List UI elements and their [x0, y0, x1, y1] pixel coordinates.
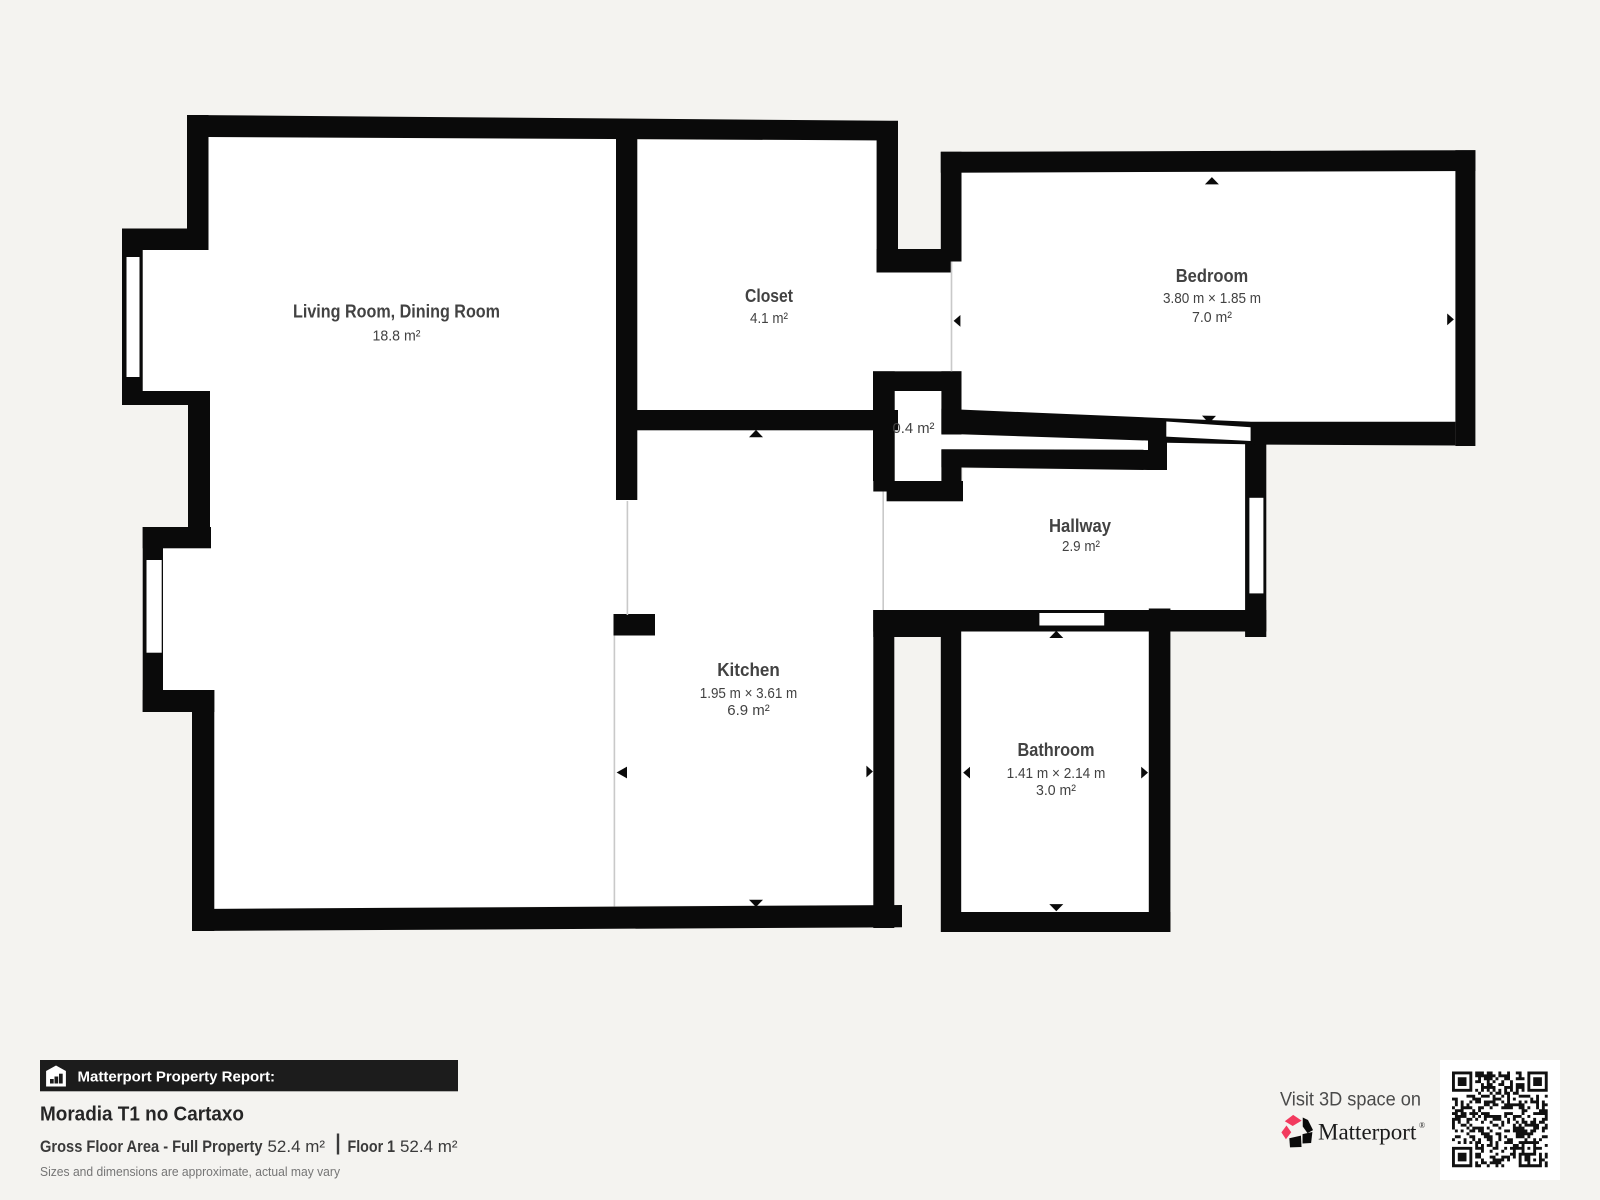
- svg-text:3.0 m²: 3.0 m²: [1036, 782, 1076, 799]
- svg-text:Hallway: Hallway: [1049, 516, 1111, 536]
- svg-text:7.0 m²: 7.0 m²: [1192, 309, 1232, 326]
- svg-text:Living Room, Dining Room: Living Room, Dining Room: [293, 302, 500, 322]
- svg-text:Moradia T1 no Cartaxo: Moradia T1 no Cartaxo: [40, 1103, 244, 1126]
- svg-text:Visit 3D space on: Visit 3D space on: [1280, 1089, 1421, 1111]
- svg-text:Bathroom: Bathroom: [1018, 740, 1095, 760]
- svg-text:1.41 m × 2.14 m: 1.41 m × 2.14 m: [1007, 765, 1106, 782]
- svg-text:Sizes and dimensions are appro: Sizes and dimensions are approximate, ac…: [40, 1164, 340, 1179]
- svg-text:Closet: Closet: [745, 286, 793, 306]
- svg-text:Matterport: Matterport: [1318, 1120, 1417, 1145]
- svg-text:Kitchen: Kitchen: [717, 660, 780, 680]
- svg-text:2.9 m²: 2.9 m²: [1062, 538, 1100, 555]
- svg-text:3.80 m × 1.85 m: 3.80 m × 1.85 m: [1163, 290, 1261, 307]
- svg-text:Floor 1: Floor 1: [348, 1138, 396, 1156]
- svg-text:18.8 m²: 18.8 m²: [373, 328, 421, 345]
- svg-text:0.4 m²: 0.4 m²: [893, 420, 935, 437]
- svg-text:52.4 m²: 52.4 m²: [400, 1138, 458, 1156]
- svg-text:1.95 m × 3.61 m: 1.95 m × 3.61 m: [700, 685, 798, 702]
- svg-text:®: ®: [1419, 1121, 1425, 1130]
- svg-text:Bedroom: Bedroom: [1176, 266, 1249, 286]
- svg-text:Matterport Property Report:: Matterport Property Report:: [78, 1069, 276, 1086]
- svg-text:4.1 m²: 4.1 m²: [750, 310, 788, 327]
- svg-text:Gross Floor Area - Full Proper: Gross Floor Area - Full Property: [40, 1138, 263, 1156]
- svg-text:6.9 m²: 6.9 m²: [727, 702, 770, 719]
- svg-text:52.4 m²: 52.4 m²: [268, 1138, 326, 1156]
